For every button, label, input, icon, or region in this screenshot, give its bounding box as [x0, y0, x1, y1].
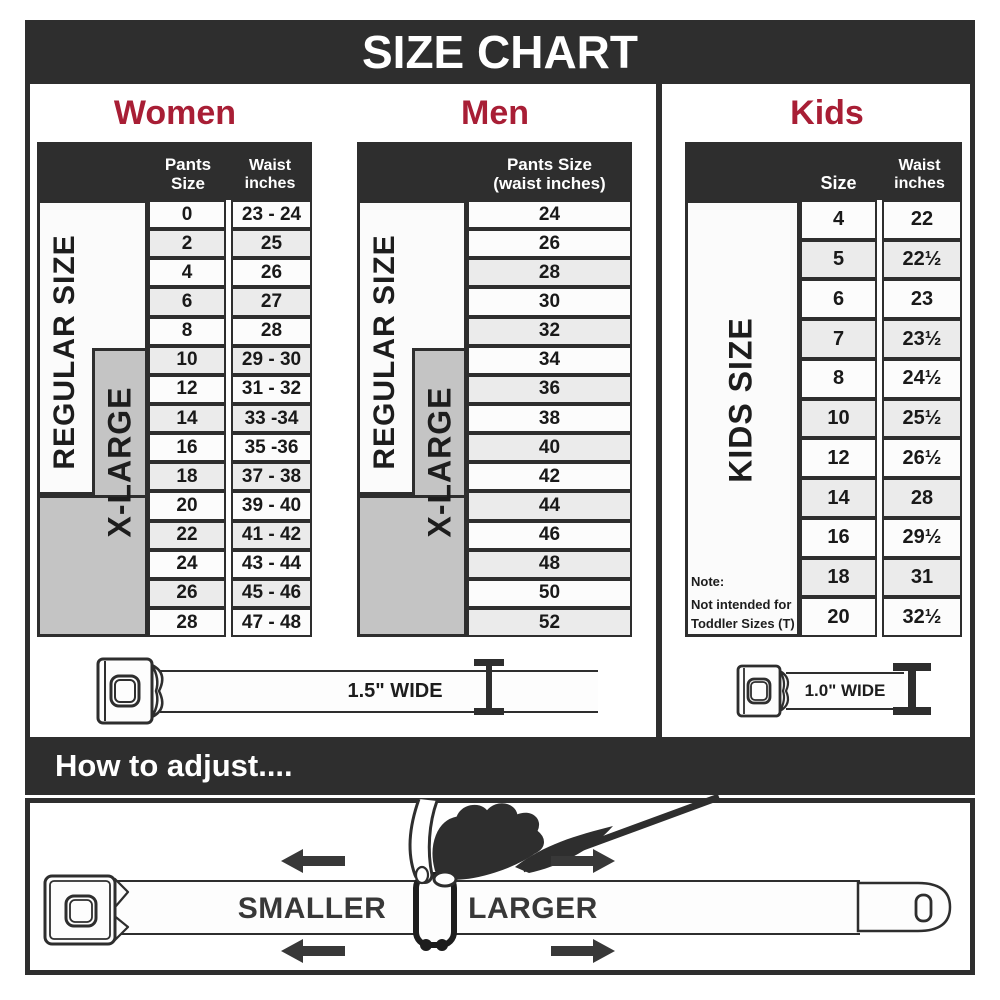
- table-row: 1837 - 38: [148, 462, 312, 491]
- adjust-buckle-icon: [42, 867, 128, 953]
- page-title: SIZE CHART: [25, 20, 975, 84]
- table-row: 2645 - 46: [148, 579, 312, 608]
- table-cell: 44: [467, 491, 632, 520]
- table-row: 627: [148, 287, 312, 316]
- table-row: 522½: [800, 240, 962, 280]
- kids-seatbelt-buckle-icon: [736, 661, 794, 721]
- table-cell: 23½: [882, 319, 962, 359]
- arrow-left-icon: [281, 849, 345, 873]
- table-cell: 43 - 44: [231, 550, 312, 579]
- kids-col1-header: Size: [800, 173, 877, 193]
- larger-label: LARGER: [418, 892, 648, 926]
- size-chart-page: SIZE CHART Women Men Kids Pants Size Wai…: [0, 0, 1000, 1000]
- table-cell: 31: [882, 558, 962, 598]
- table-cell: 18: [800, 558, 877, 598]
- kids-col2-header: Waist inches: [877, 157, 962, 193]
- men-heading: Men: [380, 94, 610, 133]
- table-cell: 35 -36: [231, 433, 312, 462]
- table-cell: 12: [148, 375, 226, 404]
- men-table-header: Pants Size (waist inches): [357, 142, 632, 200]
- table-row: 36: [467, 375, 632, 404]
- table-row: 52: [467, 608, 632, 637]
- women-col1-header: Pants Size: [148, 155, 228, 193]
- arrow-right-icon: [551, 849, 615, 873]
- men-col-header: Pants Size (waist inches): [467, 155, 632, 193]
- table-cell: 38: [467, 404, 632, 433]
- table-row: 2443 - 44: [148, 550, 312, 579]
- kids-heading: Kids: [712, 94, 942, 133]
- table-row: 32: [467, 317, 632, 346]
- table-cell: 16: [148, 433, 226, 462]
- table-row: 46: [467, 521, 632, 550]
- table-cell: 26: [467, 229, 632, 258]
- table-cell: 20: [148, 491, 226, 520]
- table-cell: 28: [467, 258, 632, 287]
- table-row: 1231 - 32: [148, 375, 312, 404]
- women-xlarge-label: X-LARGE: [102, 387, 139, 538]
- table-cell: 26½: [882, 438, 962, 478]
- frame-right-border: [970, 84, 975, 737]
- adult-belt-width-label: 1.5" WIDE: [330, 680, 460, 703]
- table-cell: 50: [467, 579, 632, 608]
- women-regular-label: REGULAR SIZE: [48, 234, 82, 469]
- table-cell: 52: [467, 608, 632, 637]
- table-cell: 20: [800, 597, 877, 637]
- table-row: 40: [467, 433, 632, 462]
- table-row: 26: [467, 229, 632, 258]
- table-row: 1831: [800, 558, 962, 598]
- table-cell: 48: [467, 550, 632, 579]
- table-cell: 47 - 48: [231, 608, 312, 637]
- table-cell: 23 - 24: [231, 200, 312, 229]
- table-cell: 33 -34: [231, 404, 312, 433]
- table-row: 023 - 24: [148, 200, 312, 229]
- table-cell: 34: [467, 346, 632, 375]
- table-cell: 26: [231, 258, 312, 287]
- belt-tip-icon: [858, 878, 958, 938]
- table-cell: 5: [800, 240, 877, 280]
- title-band: SIZE CHART: [25, 20, 975, 84]
- table-cell: 14: [800, 478, 877, 518]
- table-cell: 22½: [882, 240, 962, 280]
- table-cell: 41 - 42: [231, 521, 312, 550]
- table-cell: 28: [231, 317, 312, 346]
- table-cell: 42: [467, 462, 632, 491]
- table-cell: 27: [231, 287, 312, 316]
- table-cell: 45 - 46: [231, 579, 312, 608]
- table-row: 828: [148, 317, 312, 346]
- table-cell: 8: [800, 359, 877, 399]
- width-measure-icon: [472, 659, 506, 715]
- table-row: 1025½: [800, 399, 962, 439]
- table-row: 2241 - 42: [148, 521, 312, 550]
- table-row: 1629½: [800, 518, 962, 558]
- table-cell: 31 - 32: [231, 375, 312, 404]
- table-cell: 29½: [882, 518, 962, 558]
- table-row: 225: [148, 229, 312, 258]
- table-cell: 7: [800, 319, 877, 359]
- women-heading: Women: [60, 94, 290, 133]
- kids-note-line3: Toddler Sizes (T): [691, 617, 803, 630]
- table-cell: 6: [148, 287, 226, 316]
- kids-table-header: Size Waist inches: [685, 142, 962, 200]
- smaller-label: SMALLER: [197, 892, 427, 926]
- how-to-adjust-heading: How to adjust....: [55, 737, 293, 795]
- arrow-left-icon: [281, 939, 345, 963]
- table-cell: 37 - 38: [231, 462, 312, 491]
- kids-width-measure-icon: [893, 663, 931, 715]
- table-row: 34: [467, 346, 632, 375]
- table-cell: 4: [800, 200, 877, 240]
- table-cell: 28: [882, 478, 962, 518]
- table-row: 824½: [800, 359, 962, 399]
- table-cell: 39 - 40: [231, 491, 312, 520]
- table-cell: 8: [148, 317, 226, 346]
- table-row: 24: [467, 200, 632, 229]
- how-to-adjust-box: SMALLER LARGER: [25, 798, 975, 975]
- table-row: 623: [800, 279, 962, 319]
- table-cell: 12: [800, 438, 877, 478]
- table-cell: 4: [148, 258, 226, 287]
- kids-belt-width-label: 1.0" WIDE: [795, 681, 895, 701]
- women-table-header: Pants Size Waist inches: [37, 142, 312, 200]
- table-cell: 46: [467, 521, 632, 550]
- frame-left-border: [25, 84, 30, 737]
- table-row: 1428: [800, 478, 962, 518]
- table-cell: 10: [800, 399, 877, 439]
- table-row: 1029 - 30: [148, 346, 312, 375]
- table-cell: 32½: [882, 597, 962, 637]
- table-cell: 10: [148, 346, 226, 375]
- table-cell: 26: [148, 579, 226, 608]
- how-to-adjust-band: How to adjust....: [25, 737, 975, 795]
- table-row: 44: [467, 491, 632, 520]
- table-cell: 25½: [882, 399, 962, 439]
- table-cell: 6: [800, 279, 877, 319]
- arrow-right-icon: [551, 939, 615, 963]
- table-row: 2039 - 40: [148, 491, 312, 520]
- table-row: 28: [467, 258, 632, 287]
- kids-size-label: KIDS SIZE: [723, 317, 760, 482]
- kids-note-line1: Note:: [691, 575, 803, 588]
- table-cell: 22: [882, 200, 962, 240]
- men-table-rows: 242628303234363840424446485052: [467, 200, 632, 637]
- table-row: 38: [467, 404, 632, 433]
- table-cell: 16: [800, 518, 877, 558]
- table-cell: 36: [467, 375, 632, 404]
- table-cell: 22: [148, 521, 226, 550]
- table-row: 1226½: [800, 438, 962, 478]
- table-row: 422: [800, 200, 962, 240]
- table-row: 2847 - 48: [148, 608, 312, 637]
- kids-table-rows: 422522½623723½824½1025½1226½14281629½183…: [800, 200, 962, 637]
- table-row: 42: [467, 462, 632, 491]
- table-row: 2032½: [800, 597, 962, 637]
- seatbelt-buckle-icon: [95, 652, 171, 730]
- table-row: 426: [148, 258, 312, 287]
- table-row: 723½: [800, 319, 962, 359]
- table-cell: 40: [467, 433, 632, 462]
- table-cell: 24: [148, 550, 226, 579]
- table-cell: 24: [467, 200, 632, 229]
- table-cell: 32: [467, 317, 632, 346]
- table-cell: 30: [467, 287, 632, 316]
- table-row: 30: [467, 287, 632, 316]
- table-cell: 23: [882, 279, 962, 319]
- men-regular-label: REGULAR SIZE: [368, 234, 402, 469]
- table-cell: 24½: [882, 359, 962, 399]
- table-cell: 29 - 30: [231, 346, 312, 375]
- table-cell: 2: [148, 229, 226, 258]
- table-cell: 28: [148, 608, 226, 637]
- kids-note-line2: Not intended for: [691, 598, 803, 611]
- table-row: 1433 -34: [148, 404, 312, 433]
- table-row: 48: [467, 550, 632, 579]
- women-table-rows: 023 - 242254266278281029 - 301231 - 3214…: [148, 200, 312, 637]
- table-row: 50: [467, 579, 632, 608]
- table-cell: 18: [148, 462, 226, 491]
- women-col2-header: Waist inches: [228, 157, 312, 193]
- table-cell: 25: [231, 229, 312, 258]
- table-cell: 14: [148, 404, 226, 433]
- men-xlarge-label: X-LARGE: [422, 387, 459, 538]
- table-row: 1635 -36: [148, 433, 312, 462]
- table-cell: 0: [148, 200, 226, 229]
- section-divider: [656, 84, 662, 737]
